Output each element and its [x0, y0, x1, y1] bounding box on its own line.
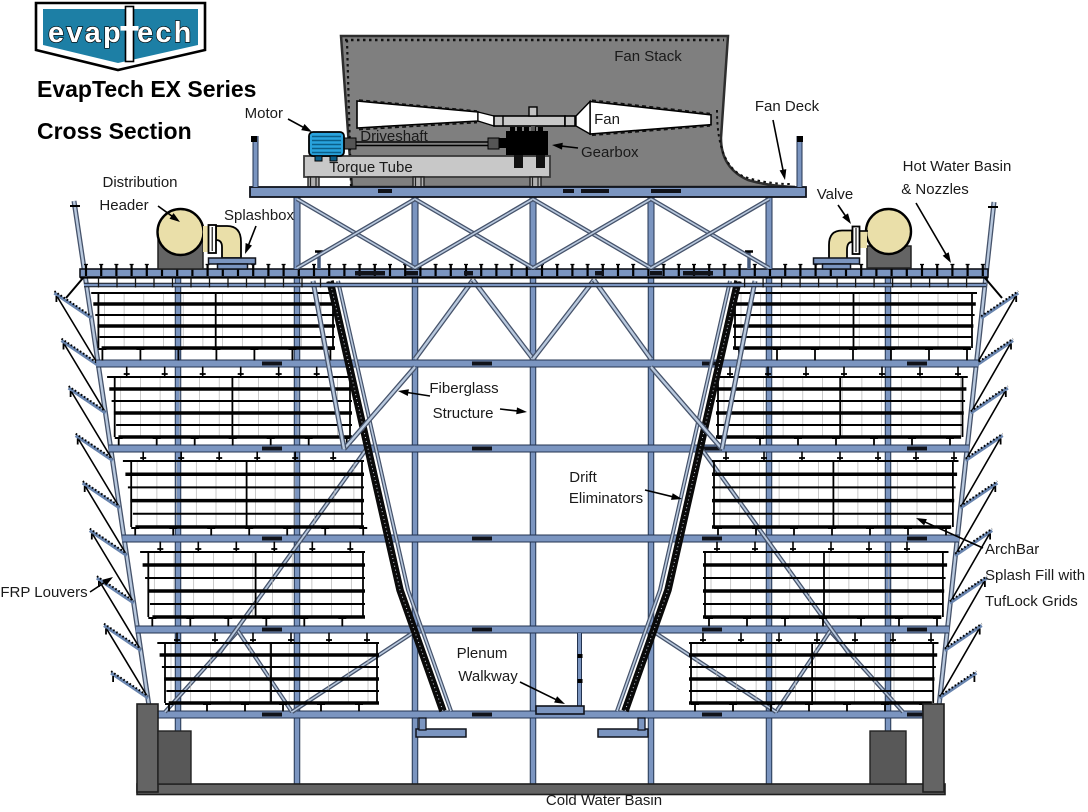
svg-text:ech: ech — [137, 17, 194, 49]
svg-text:Fan Deck: Fan Deck — [755, 98, 820, 115]
svg-text:Walkway: Walkway — [458, 668, 518, 685]
svg-text:Structure: Structure — [433, 405, 494, 422]
svg-text:Cross Section: Cross Section — [37, 118, 192, 144]
svg-text:Gearbox: Gearbox — [581, 144, 639, 161]
svg-text:Drift: Drift — [569, 469, 597, 486]
svg-text:Fan Stack: Fan Stack — [614, 48, 682, 65]
svg-text:Splash Fill with: Splash Fill with — [985, 567, 1085, 584]
svg-text:Fiberglass: Fiberglass — [429, 380, 498, 397]
svg-text:Valve: Valve — [817, 186, 853, 203]
svg-text:Distribution: Distribution — [102, 174, 177, 191]
svg-text:Torque Tube: Torque Tube — [329, 159, 412, 176]
svg-text:evap: evap — [48, 17, 123, 49]
svg-text:Cold Water Basin: Cold Water Basin — [546, 792, 662, 809]
svg-text:& Nozzles: & Nozzles — [901, 181, 969, 198]
svg-text:TufLock Grids: TufLock Grids — [985, 593, 1078, 610]
svg-text:Driveshaft: Driveshaft — [360, 128, 428, 145]
svg-text:Header: Header — [99, 197, 148, 214]
svg-text:Plenum: Plenum — [457, 645, 508, 662]
svg-text:ArchBar: ArchBar — [985, 541, 1039, 558]
svg-text:FRP Louvers: FRP Louvers — [0, 584, 87, 601]
svg-text:Fan: Fan — [594, 111, 620, 128]
svg-text:Motor: Motor — [245, 105, 283, 122]
svg-text:Hot Water Basin: Hot Water Basin — [903, 158, 1012, 175]
svg-text:Splashbox: Splashbox — [224, 207, 295, 224]
svg-text:EvapTech EX Series: EvapTech EX Series — [37, 76, 256, 102]
svg-text:Eliminators: Eliminators — [569, 490, 643, 507]
